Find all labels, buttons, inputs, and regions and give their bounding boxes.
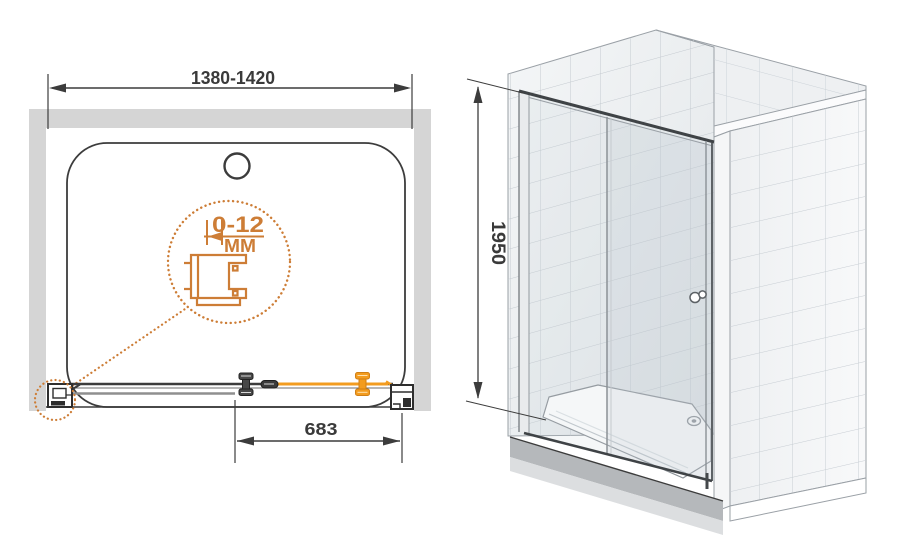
adjustment-unit-label: MM [224, 236, 256, 256]
door-dimension: 683 [235, 400, 402, 463]
width-dimension-label: 1380-1420 [191, 67, 275, 88]
height-dimension-label: 1950 [487, 221, 508, 265]
plan-view-figure: 1380-1420 0-12 MM [0, 0, 450, 536]
door-dimension-label: 683 [305, 419, 338, 439]
isometric-view-figure: 1950 [450, 0, 900, 536]
right-wall-tiled [730, 99, 866, 521]
glass-panels [521, 92, 713, 480]
detail-circle: 0-12 MM [168, 201, 290, 323]
right-wall-profile [391, 385, 413, 409]
drain-hole [225, 154, 250, 179]
diagram-canvas: 1380-1420 0-12 MM [0, 0, 900, 536]
left-wall-profile [48, 384, 72, 407]
